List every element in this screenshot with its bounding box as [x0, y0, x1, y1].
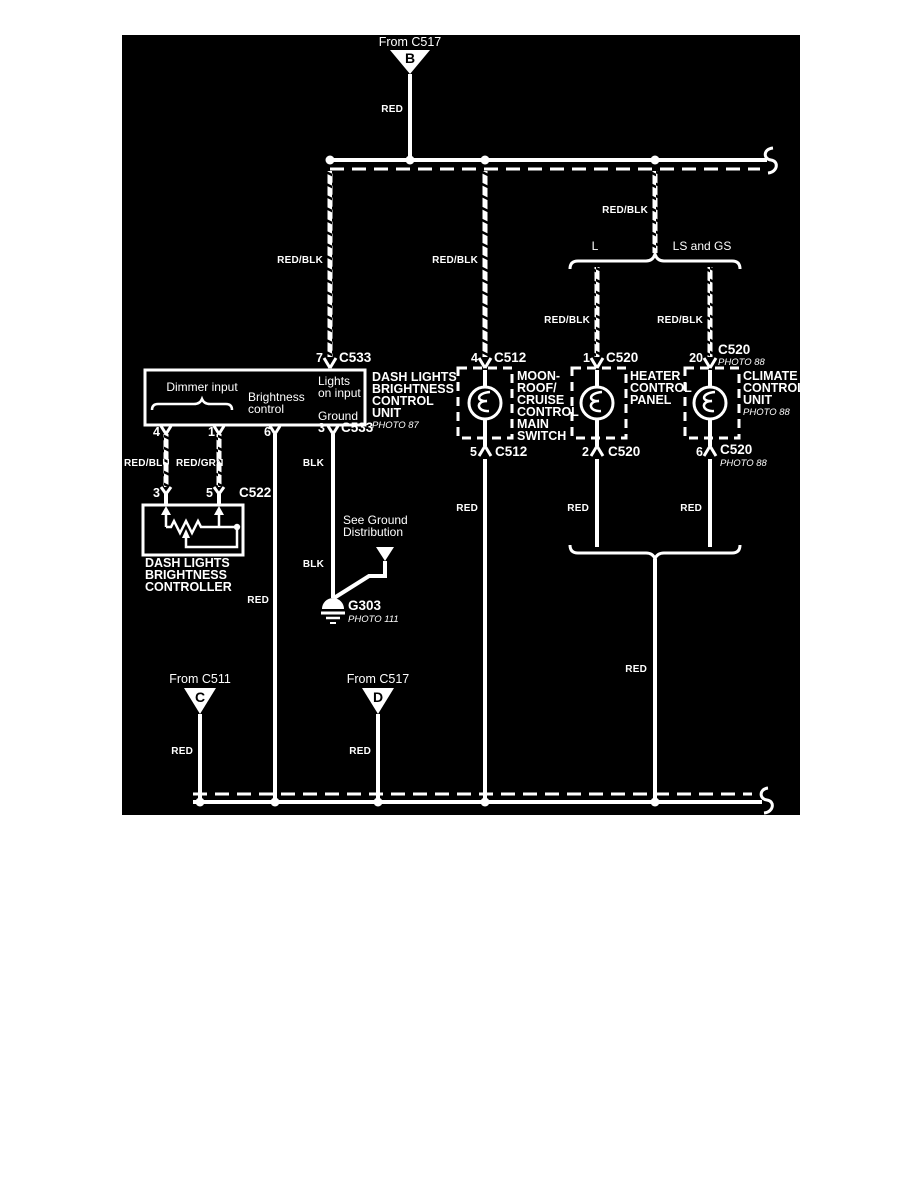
junction-dot	[481, 798, 490, 807]
page: From C517 B RED RED/BLK RED/BLK RED/BLK …	[0, 0, 918, 1188]
wire-color-red: RED	[567, 503, 589, 514]
junction-dot	[651, 798, 660, 807]
wire-color-redgrn: RED/GRN	[176, 458, 224, 469]
wire-color-red: RED	[625, 664, 647, 675]
pin-4b: 4	[153, 425, 160, 439]
wire-ground-elbow	[334, 561, 385, 598]
pin-1: 1	[583, 351, 590, 365]
merge-brace	[570, 545, 740, 559]
variant-lsgs-label: LS and GS	[673, 239, 732, 253]
pin-7: 7	[316, 351, 323, 365]
wire-color-blk: BLK	[303, 559, 325, 570]
pot-arrow-icon	[161, 506, 171, 515]
connector-symbol	[214, 487, 224, 494]
wiring-diagram: From C517 B RED RED/BLK RED/BLK RED/BLK …	[122, 35, 800, 815]
pin-5-c522: 5	[206, 486, 213, 500]
connector-symbol	[479, 446, 491, 456]
wire-color-red: RED	[456, 503, 478, 514]
connector-symbol	[591, 446, 603, 456]
connector-c520-climate-bottom: C520	[720, 442, 752, 457]
moonroof-title6: SWITCH	[517, 429, 566, 443]
connector-c533-bottom: C533	[341, 420, 374, 435]
source-b-letter: B	[405, 50, 415, 66]
lamp-filament	[591, 392, 602, 411]
wire-color-red: RED	[680, 503, 702, 514]
split-brace	[570, 254, 740, 269]
ground-g303-label: G303	[348, 598, 382, 613]
wire-color-redblk: RED/BLK	[277, 255, 323, 266]
source-d-letter: D	[373, 689, 383, 705]
connector-c512-top: C512	[494, 350, 526, 365]
connector-c520-heater-top: C520	[606, 350, 638, 365]
source-c-label: From C511	[169, 672, 231, 686]
source-b-label: From C517	[379, 35, 442, 49]
junction-dot	[651, 156, 660, 165]
junction-dot	[326, 156, 335, 165]
photo-note: PHOTO 87	[372, 420, 420, 431]
bus-bottom-continuation-icon	[761, 788, 772, 813]
resistor-symbol	[166, 521, 237, 533]
dimmer-brace	[152, 399, 232, 410]
wire-color-redblu: RED/BLU	[124, 458, 170, 469]
dlbcu-dimmer-input-label: Dimmer input	[166, 380, 238, 394]
dlbcu-lights-label2: on input	[318, 386, 361, 400]
junction-dot	[406, 156, 415, 165]
wire-redblk-c512	[483, 171, 488, 357]
pot-arrow-icon	[214, 506, 224, 515]
pin-6: 6	[696, 445, 703, 459]
ground-dist-triangle-icon	[376, 547, 394, 561]
junction-dot	[196, 798, 205, 807]
pin-3-c522: 3	[153, 486, 160, 500]
lamp-filament	[479, 392, 490, 411]
source-c-letter: C	[195, 689, 205, 705]
wire-color-blk: BLK	[303, 458, 325, 469]
connector-c520-heater-bottom: C520	[608, 444, 640, 459]
junction-dot	[481, 156, 490, 165]
wiring-diagram-svg: From C517 B RED RED/BLK RED/BLK RED/BLK …	[122, 35, 800, 815]
connector-c512-bottom: C512	[495, 444, 527, 459]
pin-5: 5	[470, 445, 477, 459]
dlbcu-brightness-label2: control	[248, 402, 284, 416]
wire-color-red: RED	[349, 746, 371, 757]
wire-color-red: RED	[171, 746, 193, 757]
junction-dot	[374, 798, 383, 807]
wire-color-redblk: RED/BLK	[657, 315, 703, 326]
wiper-arrow-icon	[182, 529, 190, 538]
junction-dot	[271, 798, 280, 807]
connector-c520-climate-top: C520	[718, 342, 750, 357]
connector-symbol	[161, 426, 171, 434]
pin-3b: 3	[318, 421, 325, 435]
photo-note: PHOTO 111	[348, 614, 399, 625]
pin-2: 2	[582, 445, 589, 459]
pin-4: 4	[471, 351, 478, 365]
heater-title3: PANEL	[630, 393, 672, 407]
junction-dot	[234, 524, 240, 530]
pin-20: 20	[689, 351, 703, 365]
source-d-label: From C517	[347, 672, 410, 686]
wire-color-redblk: RED/BLK	[602, 205, 648, 216]
climate-title3: UNIT	[743, 393, 773, 407]
connector-symbol	[704, 446, 716, 456]
wire-redblk-c533	[328, 171, 333, 357]
lamp-filament	[704, 392, 715, 411]
wire-redblk-branch	[653, 171, 658, 253]
wire-color-redblk: RED/BLK	[432, 255, 478, 266]
connector-c522: C522	[239, 485, 271, 500]
photo-note: PHOTO 88	[743, 407, 791, 418]
controller-title3: CONTROLLER	[145, 580, 232, 594]
wire-color-redblk: RED/BLK	[544, 315, 590, 326]
connector-symbol	[324, 358, 336, 368]
variant-l-label: L	[592, 239, 599, 253]
connector-symbol	[161, 487, 171, 494]
photo-note: PHOTO 88	[718, 357, 766, 368]
wire-redblk-climate	[708, 267, 713, 357]
connector-symbol	[328, 426, 338, 434]
connector-c533-top: C533	[339, 350, 372, 365]
connector-symbol	[270, 426, 280, 434]
connector-symbol	[214, 426, 224, 434]
ground-symbol-icon	[322, 598, 344, 609]
wire-color-red: RED	[247, 595, 269, 606]
see-ground-label2: Distribution	[343, 525, 403, 539]
wire-redblk-heater	[595, 267, 600, 357]
photo-note: PHOTO 88	[720, 458, 768, 469]
dlbcu-title4: UNIT	[372, 406, 402, 420]
wire-color-red: RED	[381, 104, 403, 115]
